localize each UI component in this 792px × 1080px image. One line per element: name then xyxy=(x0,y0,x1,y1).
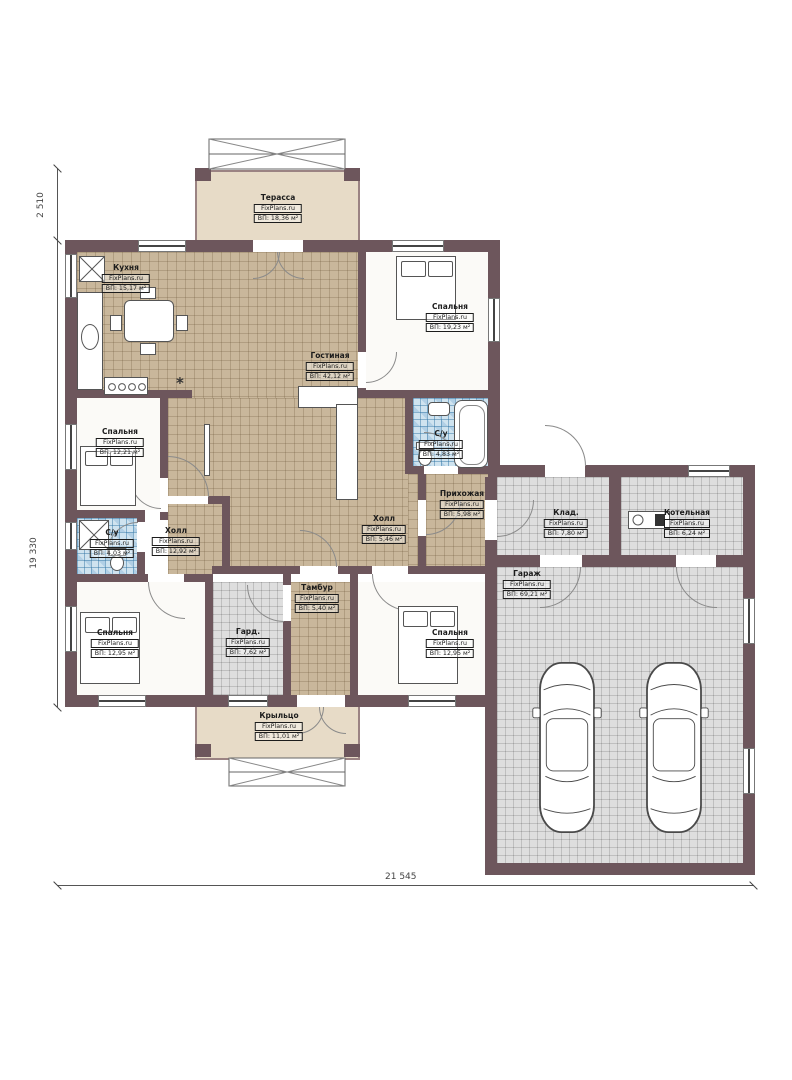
room-area: ВП: 15,17 м² xyxy=(102,284,150,293)
room-label-bedroom-bottom-mid: Спальня FixPlans.ru ВП: 12,95 м² xyxy=(426,629,474,658)
room-brand: FixPlans.ru xyxy=(102,274,150,283)
room-name: Холл xyxy=(152,527,200,536)
dining-table xyxy=(124,300,174,342)
wall-bedroom-bl-north xyxy=(77,574,212,582)
window-bedroom-bm-bottom xyxy=(408,695,456,707)
room-name: Тамбур xyxy=(295,584,339,593)
window-bedroom-tr-right xyxy=(488,298,500,342)
room-name: Гостиная xyxy=(306,352,354,361)
room-name: Спальня xyxy=(91,629,139,638)
car-left xyxy=(531,655,603,840)
wall-bathroom-main-west xyxy=(405,398,413,474)
room-name: Клад. xyxy=(544,509,588,518)
door-gap-garage-boiler xyxy=(676,555,716,567)
room-label-hall-small: Холл FixPlans.ru ВП: 5,46 м² xyxy=(362,515,406,544)
room-label-wardrobe: Гард. FixPlans.ru ВП: 7,62 м² xyxy=(226,628,270,657)
room-brand: FixPlans.ru xyxy=(96,438,144,447)
wall-bedroom-tr-south xyxy=(358,390,495,398)
door-gap-bathroom-left xyxy=(137,522,145,552)
chair-right xyxy=(176,315,188,331)
window-bedroom-bl-bottom xyxy=(98,695,146,707)
kitchen-sink xyxy=(81,324,99,350)
room-brand: FixPlans.ru xyxy=(152,537,200,546)
room-label-storage: Клад. FixPlans.ru ВП: 7,80 м² xyxy=(544,509,588,538)
room-name: Терасса xyxy=(254,194,302,203)
room-label-boiler-room: Котельная FixPlans.ru ВП: 6,24 м² xyxy=(664,509,710,538)
door-gap-terrace xyxy=(253,240,303,252)
window-garage-right-2 xyxy=(743,748,755,794)
window-bedroom-left xyxy=(65,424,77,470)
room-area: ВП: 12,95 м² xyxy=(91,649,139,658)
room-brand: FixPlans.ru xyxy=(503,580,551,589)
door-gap-bedroom-tr xyxy=(358,352,366,388)
room-name: С/у xyxy=(90,529,134,538)
room-brand: FixPlans.ru xyxy=(254,204,302,213)
room-name: Холл xyxy=(362,515,406,524)
room-brand: FixPlans.ru xyxy=(426,313,474,322)
door-gap-porch xyxy=(297,695,345,707)
door-gap-wardrobe xyxy=(283,585,291,621)
room-area: ВП: 7,62 м² xyxy=(226,648,270,657)
room-label-bedroom-bottom-left: Спальня FixPlans.ru ВП: 12,95 м² xyxy=(91,629,139,658)
porch-steps xyxy=(228,757,346,787)
room-label-hall: Холл FixPlans.ru ВП: 12,92 м² xyxy=(152,527,200,556)
room-brand: FixPlans.ru xyxy=(419,440,463,449)
wall-bedroom-bl-east xyxy=(205,574,213,695)
tv-panel xyxy=(204,424,210,476)
room-area: ВП: 5,98 м² xyxy=(440,510,484,519)
room-area: ВП: 4,03 м² xyxy=(90,549,134,558)
room-label-bedroom-top-right: Спальня FixPlans.ru ВП: 19,23 м² xyxy=(426,303,474,332)
stove xyxy=(104,377,148,395)
room-area: ВП: 12,92 м² xyxy=(152,547,200,556)
room-area: ВП: 4,83 м² xyxy=(419,450,463,459)
window-wardrobe-bottom xyxy=(228,695,268,707)
dim-line-left-main xyxy=(57,240,58,707)
wall-bathroom-left-north xyxy=(77,510,145,518)
window-bathroom-left xyxy=(65,522,77,550)
wall-hall-east xyxy=(222,496,230,574)
room-area: ВП: 12,95 м² xyxy=(426,649,474,658)
room-name: Котельная xyxy=(664,509,710,518)
room-label-terrace: Терасса FixPlans.ru ВП: 18,36 м² xyxy=(254,194,302,223)
sofa-seat xyxy=(336,404,358,500)
room-brand: FixPlans.ru xyxy=(226,638,270,647)
wall-right-upper xyxy=(488,240,500,477)
room-brand: FixPlans.ru xyxy=(91,639,139,648)
room-name: Кухня xyxy=(102,264,150,273)
room-name: Крыльцо xyxy=(255,712,303,721)
room-brand: FixPlans.ru xyxy=(544,519,588,528)
window-bedroom-bl-left xyxy=(65,606,77,652)
wall-hall-south xyxy=(212,566,488,574)
chair-bottom xyxy=(140,343,156,355)
room-name: С/у xyxy=(419,430,463,439)
door-gap-house-storage xyxy=(485,500,497,540)
room-brand: FixPlans.ru xyxy=(255,722,303,731)
dim-line-bottom xyxy=(57,885,754,886)
room-name: Спальня xyxy=(96,428,144,437)
room-name: Прихожая xyxy=(440,490,484,499)
room-label-bathroom-left: С/у FixPlans.ru ВП: 4,03 м² xyxy=(90,529,134,558)
dim-label-bottom: 21 545 xyxy=(385,872,417,882)
door-gap-backdoor xyxy=(545,465,585,477)
door-gap-hall-living xyxy=(168,496,208,504)
room-label-kitchen: Кухня FixPlans.ru ВП: 15,17 м² xyxy=(102,264,150,293)
porch-pillar-right xyxy=(344,744,360,757)
room-name: Спальня xyxy=(426,303,474,312)
room-area: ВП: 6,24 м² xyxy=(664,529,710,538)
room-area: ВП: 42,12 м² xyxy=(306,372,354,381)
window-bedroom-tr-top xyxy=(392,240,444,252)
room-brand: FixPlans.ru xyxy=(426,639,474,648)
room-label-bathroom-main: С/у FixPlans.ru ВП: 4,83 м² xyxy=(419,430,463,459)
room-label-garage: Гараж FixPlans.ru ВП: 69,21 м² xyxy=(503,570,551,599)
dim-line-left-upper xyxy=(57,168,58,240)
door-gap-entry-hall xyxy=(418,500,426,536)
room-area: ВП: 5,46 м² xyxy=(362,535,406,544)
room-area: ВП: 5,40 м² xyxy=(295,604,339,613)
room-brand: FixPlans.ru xyxy=(362,525,406,534)
door-gap-bedroom-bm xyxy=(372,566,408,574)
wall-tambour-east xyxy=(350,574,358,695)
wall-garage-right xyxy=(743,465,755,875)
room-area: ВП: 19,23 м² xyxy=(426,323,474,332)
room-name: Спальня xyxy=(426,629,474,638)
car-right xyxy=(638,655,710,840)
sink-main xyxy=(428,402,450,416)
room-label-porch: Крыльцо FixPlans.ru ВП: 11,01 м² xyxy=(255,712,303,741)
door-gap-tambour xyxy=(300,566,338,574)
room-name: Гард. xyxy=(226,628,270,637)
window-garage-right-1 xyxy=(743,598,755,644)
door-gap-bathroom-main xyxy=(424,466,458,474)
dim-label-left-upper: 2 510 xyxy=(36,192,46,218)
room-label-bedroom-left: Спальня FixPlans.ru ВП: 12,21 м² xyxy=(96,428,144,457)
door-gap-bedroom-left xyxy=(160,478,168,512)
terrace-pillar-right xyxy=(344,168,360,181)
room-label-entry-hall: Прихожая FixPlans.ru ВП: 5,98 м² xyxy=(440,490,484,519)
window-kitchen-left xyxy=(65,254,77,298)
room-brand: FixPlans.ru xyxy=(306,362,354,371)
room-area: ВП: 11,01 м² xyxy=(255,732,303,741)
window-kitchen-top xyxy=(138,240,186,252)
room-brand: FixPlans.ru xyxy=(295,594,339,603)
fridge-icon: * xyxy=(176,374,184,392)
door-gap-garage-storage xyxy=(540,555,582,567)
wall-storage-boiler-divider xyxy=(609,477,621,567)
room-area: ВП: 69,21 м² xyxy=(503,590,551,599)
porch-pillar-left xyxy=(195,744,211,757)
room-brand: FixPlans.ru xyxy=(440,500,484,509)
room-brand: FixPlans.ru xyxy=(90,539,134,548)
room-area: ВП: 18,36 м² xyxy=(254,214,302,223)
room-area: ВП: 7,80 м² xyxy=(544,529,588,538)
room-label-living-room: Гостиная FixPlans.ru ВП: 42,12 м² xyxy=(306,352,354,381)
window-garage-top xyxy=(688,465,730,477)
room-area: ВП: 12,21 м² xyxy=(96,448,144,457)
room-name: Гараж xyxy=(503,570,551,579)
door-arc-backdoor xyxy=(545,425,586,466)
dim-label-left-main: 19 330 xyxy=(29,537,39,569)
room-brand: FixPlans.ru xyxy=(664,519,710,528)
chair-left xyxy=(110,315,122,331)
wall-garage-bottom xyxy=(485,863,755,875)
door-gap-bedroom-bl xyxy=(148,574,184,582)
room-label-tambour: Тамбур FixPlans.ru ВП: 5,40 м² xyxy=(295,584,339,613)
terrace-steps xyxy=(208,138,346,170)
floor-plan: * xyxy=(0,0,792,1080)
